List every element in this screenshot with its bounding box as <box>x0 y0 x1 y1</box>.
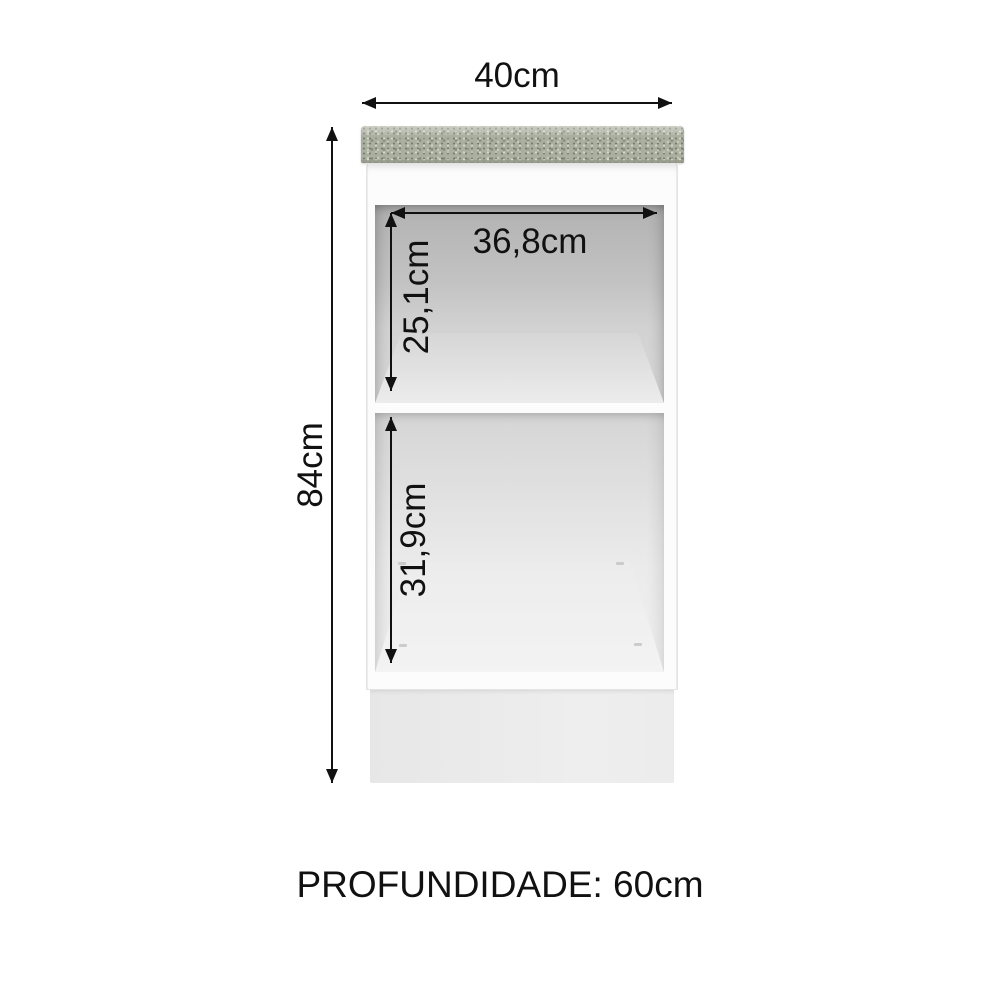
bottom-compartment-height-label: 31,9cm <box>393 460 435 620</box>
cabinet-countertop <box>361 126 684 163</box>
height-dimension-arrow <box>331 127 333 783</box>
cabinet-base-panel <box>370 690 674 783</box>
cam-hole-mark <box>634 643 642 646</box>
top-compartment-height-label: 25,1cm <box>396 217 438 377</box>
top-compartment-height-arrow <box>390 213 392 391</box>
inner-width-dimension-arrow <box>391 212 657 214</box>
cam-hole-mark <box>399 644 407 647</box>
bottom-compartment-height-arrow <box>390 417 392 663</box>
inner-width-dimension-label: 36,8cm <box>430 223 630 262</box>
height-dimension-label: 84cm <box>290 385 332 545</box>
cam-hole-mark <box>616 562 624 565</box>
width-dimension-arrow <box>362 102 672 104</box>
cabinet-dimension-diagram: 40cm 84cm 36,8cm 25,1cm 31,9cm PROFUNDID… <box>0 0 1000 1000</box>
depth-label: PROFUNDIDADE: 60cm <box>0 864 1000 906</box>
width-dimension-label: 40cm <box>362 57 672 96</box>
